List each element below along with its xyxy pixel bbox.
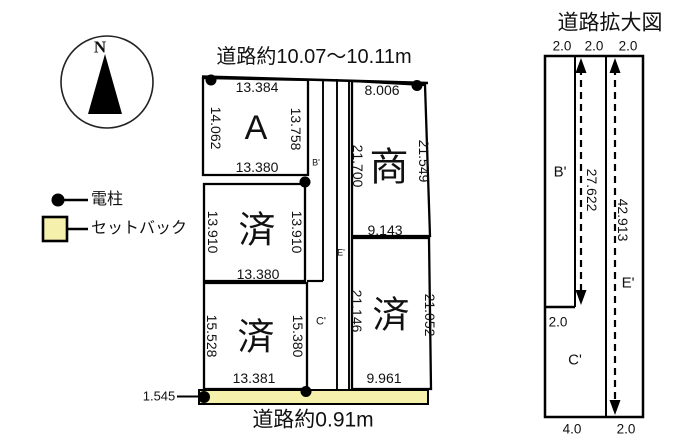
plot-top-right-right-dim: 21.549 [417, 140, 431, 183]
detail-title: 道路拡大図 [558, 13, 663, 34]
detail-b-length: 27.622 [585, 169, 599, 212]
detail-c-label: C' [568, 353, 582, 368]
plot-bottom-left-bottom-dim: 13.381 [233, 371, 276, 385]
road-e-label: E' [337, 249, 345, 258]
detail-top-width-2: 2.0 [585, 39, 604, 53]
detail-step-width: 2.0 [549, 315, 568, 329]
plot-top-right-left-dim: 21.700 [351, 145, 365, 188]
plot-top-right-top-dim: 8.006 [364, 83, 399, 97]
plot-mid-left-bottom-dim: 13.380 [237, 267, 280, 281]
pole-dot-top-right [412, 80, 423, 91]
compass-north-label: N [94, 39, 106, 56]
plot-bottom-right-name: 済 [373, 297, 410, 334]
legend-setback-swatch [43, 217, 67, 241]
plot-bottom-right-left-dim: 21.146 [350, 290, 364, 333]
plot-top-right-name: 商 [369, 149, 408, 188]
plot-top-right-bottom-dim: 9.143 [367, 223, 402, 237]
plot-bottom-left-left-dim: 15.528 [205, 315, 219, 358]
detail-top-width-1: 2.0 [553, 39, 572, 53]
detail-measure-e-arrow-bottom [610, 400, 621, 415]
detail-e-length: 42.913 [616, 199, 630, 242]
setback-strip [199, 390, 428, 404]
legend-setback-label: セットバック [91, 221, 187, 237]
plot-bottom-right-right-dim: 21.052 [423, 294, 437, 337]
road-top-label: 道路約10.07〜10.11m [216, 47, 411, 67]
detail-bottom-width-2: 2.0 [617, 422, 636, 436]
road-c-label: C' [316, 317, 326, 328]
plot-a-right-dim: 13.758 [289, 108, 303, 151]
pole-dot-top-left [206, 75, 217, 86]
plot-a-left-dim: 14.062 [209, 107, 223, 150]
plot-bottom-left-right-dim: 15.380 [291, 315, 305, 358]
pole-dot-mid [300, 177, 311, 188]
plot-plan-page: N 電柱 セットバック 道路約10.07〜10.11m 道路約0.91m 1.5… [0, 0, 700, 440]
legend-pole-label: 電柱 [91, 192, 123, 208]
plot-mid-left-name: 済 [239, 212, 276, 249]
offset-left-label: 1.545 [143, 390, 176, 403]
detail-b-label: B' [554, 165, 567, 180]
detail-top-width-3: 2.0 [619, 39, 638, 53]
plot-a-name: A [245, 111, 268, 145]
detail-measure-b-arrow-top [576, 58, 587, 73]
plot-bottom-right-bottom-dim: 9.961 [366, 371, 401, 385]
detail-measure-e-arrow-top [610, 58, 621, 73]
plot-a-bottom-dim: 13.380 [236, 160, 279, 174]
road-b-label: B' [312, 159, 320, 168]
pole-dot-strip-left [198, 391, 210, 403]
detail-measure-b-arrow-bottom [576, 290, 587, 305]
plot-a-top-dim: 13.384 [236, 80, 279, 94]
plot-mid-left-right-dim: 13.910 [290, 211, 304, 254]
plot-bottom-left-name: 済 [238, 319, 275, 356]
legend-pole-dot-icon [52, 194, 65, 207]
detail-e-label: E' [622, 276, 635, 291]
detail-bottom-width-1: 4.0 [563, 422, 582, 436]
road-bottom-label: 道路約0.91m [252, 410, 373, 431]
plot-mid-left-left-dim: 13.910 [206, 211, 220, 254]
compass-needle-icon [88, 54, 122, 114]
pole-dot-bottom [301, 386, 312, 397]
